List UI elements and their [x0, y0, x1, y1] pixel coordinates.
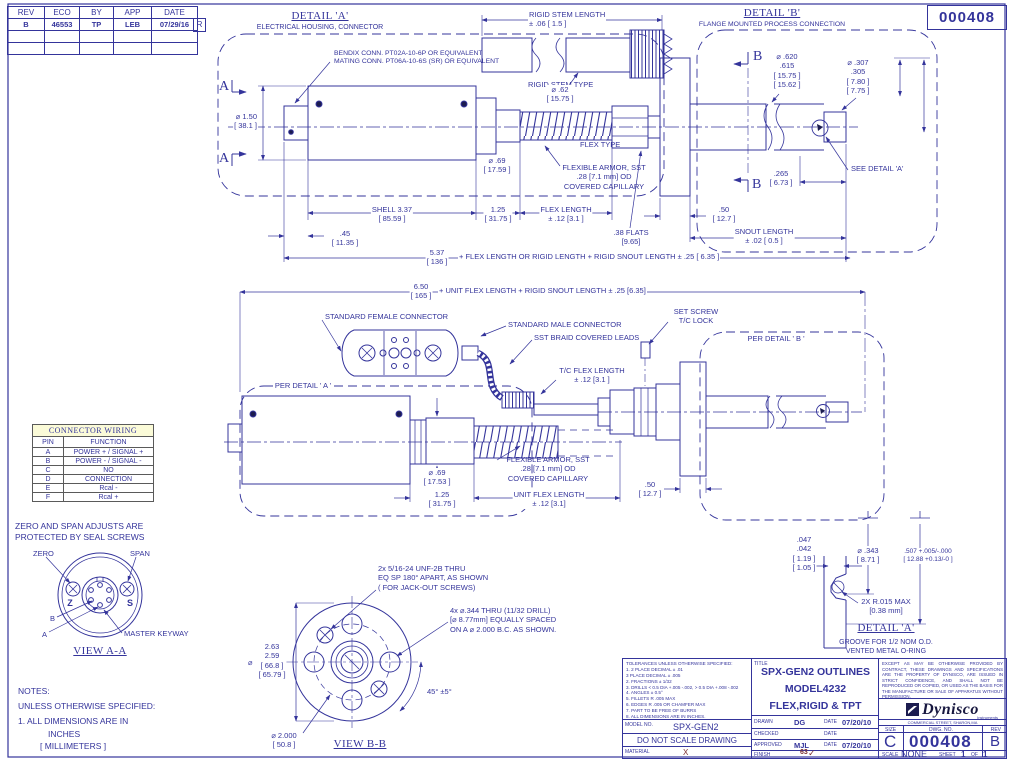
- dim-label: ⌀ .307 .305 [ 7.80 ] [ 7.75 ]: [846, 58, 871, 96]
- section-letter-a: A: [219, 78, 229, 96]
- dim-label: SNOUT LENGTH ± .02 [ 0.5 ]: [734, 227, 795, 246]
- dim-label: ⌀ .620 .615 [ 15.75 ] [ 15.62 ]: [772, 52, 801, 90]
- note: SEE DETAIL 'A': [851, 164, 903, 173]
- notes-line: [ MILLIMETERS ]: [40, 741, 106, 752]
- note: STANDARD FEMALE CONNECTOR: [325, 312, 448, 321]
- dim-label: T/C FLEX LENGTH ± .12 [3.1 ]: [559, 366, 624, 385]
- rev-value: B: [990, 733, 1000, 750]
- rev-value: B: [8, 19, 45, 31]
- note: SST BRAID COVERED LEADS: [534, 333, 639, 342]
- finish-value: 63: [800, 749, 808, 756]
- connector-wiring-table: CONNECTOR WIRING PIN FUNCTION APOWER + /…: [32, 424, 154, 502]
- size-value: C: [884, 732, 896, 752]
- notes-line: INCHES: [48, 729, 80, 740]
- set-screw: [641, 342, 650, 358]
- doc-number-box: 000408: [927, 5, 1007, 30]
- tc-rod: [534, 404, 598, 415]
- checked-label: CHECKED: [754, 731, 778, 737]
- dim-label: ⌀ 1.50 [ 38.1 ]: [233, 112, 258, 131]
- s-marking: S: [127, 598, 133, 609]
- dim-label: .265 [ 6.73 ]: [769, 169, 794, 188]
- dim-label: .45 [ 11.35 ]: [331, 229, 360, 248]
- flex-armor-coil: [520, 112, 612, 140]
- model-no-value: SPX-GEN2: [673, 722, 719, 732]
- per-detail-b-bubble: [700, 332, 884, 520]
- dim-label: ⌀ .69 [ 17.59 ]: [482, 156, 511, 175]
- detail-a-bottom-title: DETAIL 'A': [857, 622, 914, 636]
- finish-label: FINISH: [754, 752, 770, 758]
- revision-mark: R: [193, 18, 206, 32]
- detail-a-title: DETAIL 'A': [291, 10, 348, 24]
- reducer: [476, 98, 496, 154]
- scale-label: SCALE: [882, 752, 898, 758]
- brand-name: Dynisco: [922, 701, 979, 718]
- leader-flex-armor: [545, 146, 560, 166]
- rev-header: REV: [8, 7, 45, 19]
- detail-b-title: DETAIL 'B': [744, 7, 800, 21]
- date-label: DATE: [824, 742, 837, 748]
- dim-label: ⌀ .62 [ 15.75 ]: [545, 85, 574, 104]
- diameter-symbol: ⌀: [248, 658, 253, 667]
- do-not-scale-note: DO NOT SCALE DRAWING: [623, 734, 752, 747]
- zero-label: ZERO: [33, 549, 54, 558]
- drawing-title-line2: MODEL4232: [752, 683, 879, 695]
- span-label: SPAN: [130, 549, 150, 558]
- dynisco-logo-icon: [906, 703, 919, 716]
- section-letter-b: B: [753, 48, 762, 66]
- material-label: MATERIAL: [625, 749, 650, 755]
- bendix-connector: [284, 106, 308, 140]
- groove-note: GROOVE FOR 1/2 NOM O.D. VENTED METAL O-R…: [839, 639, 933, 657]
- note: PER DETAIL ' B ': [746, 334, 805, 343]
- drawn-value: DG: [794, 718, 805, 727]
- approved-date: 07/20/10: [842, 741, 871, 750]
- scale-value: NONE: [901, 749, 927, 759]
- legal-notice: EXCEPT AS MAY BE OTHERWISE PROVIDED BY C…: [879, 659, 1006, 699]
- surface-finish-icon: ✓: [808, 748, 816, 759]
- male-connector-tail: [462, 346, 478, 360]
- detail-b-subtitle: FLANGE MOUNTED PROCESS CONNECTION: [699, 21, 845, 29]
- view-bb-title: VIEW B-B: [334, 738, 387, 752]
- housing-screw-icon: [396, 411, 402, 417]
- z-marking: Z: [67, 598, 73, 609]
- approved-label: APPROVED: [754, 742, 782, 748]
- housing-second-view: [242, 396, 410, 484]
- dim-label: .38 FLATS [9.65]: [612, 228, 649, 247]
- section-letter-b: B: [752, 176, 761, 194]
- drawing-sheet: REV ECO BY APP DATE B 46553 TP LEB 07/29…: [0, 0, 1010, 764]
- housing-screw-icon: [316, 101, 322, 107]
- zero-span-note: ZERO AND SPAN ADJUSTS ARE PROTECTED BY S…: [15, 521, 144, 542]
- view-aa-title: VIEW A-A: [73, 645, 126, 659]
- dim-label: ⌀ .343 [ 8.71 ]: [856, 546, 881, 565]
- dim-label: RIGID STEM LENGTH ± .06 [ 1.5 ]: [528, 10, 606, 29]
- dim-label: .50 [ 12.7 ]: [712, 205, 737, 224]
- dim-label: SHELL 3.37 [ 85.59 ]: [371, 205, 413, 224]
- dim-label: .50 [ 12.7 ]: [638, 480, 663, 499]
- note: + UNIT FLEX LENGTH + RIGID SNOUT LENGTH …: [438, 286, 647, 295]
- notes-heading: NOTES:: [18, 686, 50, 697]
- dim-label: .047 .042 [ 1.19 ] [ 1.05 ]: [792, 535, 817, 573]
- wiring-title: CONNECTOR WIRING: [33, 425, 154, 437]
- note: + FLEX LENGTH OR RIGID LENGTH + RIGID SN…: [458, 252, 720, 261]
- note: FLEXIBLE ARMOR, SST .28 [7.1 mm] OD COVE…: [562, 163, 645, 191]
- flange-second-view: [680, 362, 706, 476]
- flex-armor-coil-2: [474, 426, 558, 458]
- dim-label: 5.37 [ 136 ]: [426, 248, 449, 267]
- drawing-title-line3: FLEX,RIGID & TPT: [752, 700, 879, 712]
- dim-label: ⌀ .69 [ 17.53 ]: [422, 468, 451, 487]
- transition-block: [426, 418, 474, 464]
- tolerances-note: TOLERANCES UNLESS OTHERWISE SPECIFIED: 1…: [623, 659, 752, 720]
- dim-label: .507 +.005/-.000 [ 12.88 +0.13/-0 ]: [902, 548, 953, 564]
- connector-screw: [289, 130, 294, 135]
- dim-label: 6.50 [ 165 ]: [410, 282, 433, 301]
- jack-out-note: 2x 5/16-24 UNF-2B THRU EQ SP 180° APART,…: [378, 564, 488, 592]
- drawn-label: DRAWN: [754, 719, 773, 725]
- dim-label: 1.25 [ 31.75 ]: [427, 490, 456, 509]
- housing-screw-icon: [250, 411, 256, 417]
- of-label: OF: [971, 752, 978, 758]
- bolt-holes-note: 4x ⌀.344 THRU (11/32 DRILL) [⌀ 8.77mm] E…: [450, 606, 556, 634]
- notes-line: 1. ALL DIMENSIONS ARE IN: [18, 716, 128, 727]
- master-keyway-label: MASTER KEYWAY: [124, 629, 189, 638]
- sheet-label: SHEET: [939, 752, 956, 758]
- revision-table: REV ECO BY APP DATE B 46553 TP LEB 07/29…: [7, 6, 198, 55]
- note: SET SCREW T/C LOCK: [674, 307, 718, 326]
- threaded-end: [630, 30, 664, 78]
- material-value: X: [683, 748, 688, 757]
- note: PER DETAIL ' A ': [274, 381, 332, 390]
- dim-label: 1.25 [ 31.75 ]: [483, 205, 512, 224]
- sheet-total: 1: [983, 750, 987, 759]
- sheet-number: 1: [961, 750, 965, 759]
- caption: FLEX TYPE: [580, 140, 620, 149]
- housing-top-view: [308, 86, 476, 160]
- dim-label: 45° ±5°: [426, 687, 453, 696]
- threaded-fitting: [502, 392, 534, 408]
- housing-screw-icon: [461, 101, 467, 107]
- dim-label: 2.63 2.59 [ 66.8 ] [ 65.79 ]: [257, 642, 286, 680]
- model-no-label: MODEL NO.: [625, 722, 653, 728]
- dim-label: ⌀ 2.000 [ 50.8 ]: [270, 731, 297, 750]
- view-aa-outer: [58, 553, 142, 637]
- title-block: TOLERANCES UNLESS OTHERWISE SPECIFIED: 1…: [622, 658, 1007, 759]
- bendix-note: BENDIX CONN. PT02A-10-6P OR EQUIVALENT M…: [334, 50, 499, 67]
- detail-a-subtitle: ELECTRICAL HOUSING, CONNECTOR: [257, 24, 383, 33]
- drawing-title-line1: SPX-GEN2 OUTLINES: [752, 666, 879, 678]
- section-letter-a: A: [219, 150, 229, 168]
- pin-b-label: B: [50, 614, 55, 623]
- note: STANDARD MALE CONNECTOR: [508, 320, 622, 329]
- date-label: DATE: [824, 719, 837, 725]
- pin-a-label: A: [42, 630, 47, 639]
- notes-line: UNLESS OTHERWISE SPECIFIED:: [18, 701, 155, 712]
- radius-note: 2X R.015 MAX [0.38 mm]: [860, 597, 912, 616]
- note: FLEXIBLE ARMOR, SST .28 [7.1 mm] OD COVE…: [506, 455, 589, 483]
- leader-bendix: [295, 62, 330, 103]
- dim-label: FLEX LENGTH ± .12 [3.1 ]: [539, 205, 592, 224]
- dim-label: UNIT FLEX LENGTH ± .12 [3.1]: [513, 490, 586, 509]
- date-label: DATE: [824, 731, 837, 737]
- drawn-date: 07/20/10: [842, 718, 871, 727]
